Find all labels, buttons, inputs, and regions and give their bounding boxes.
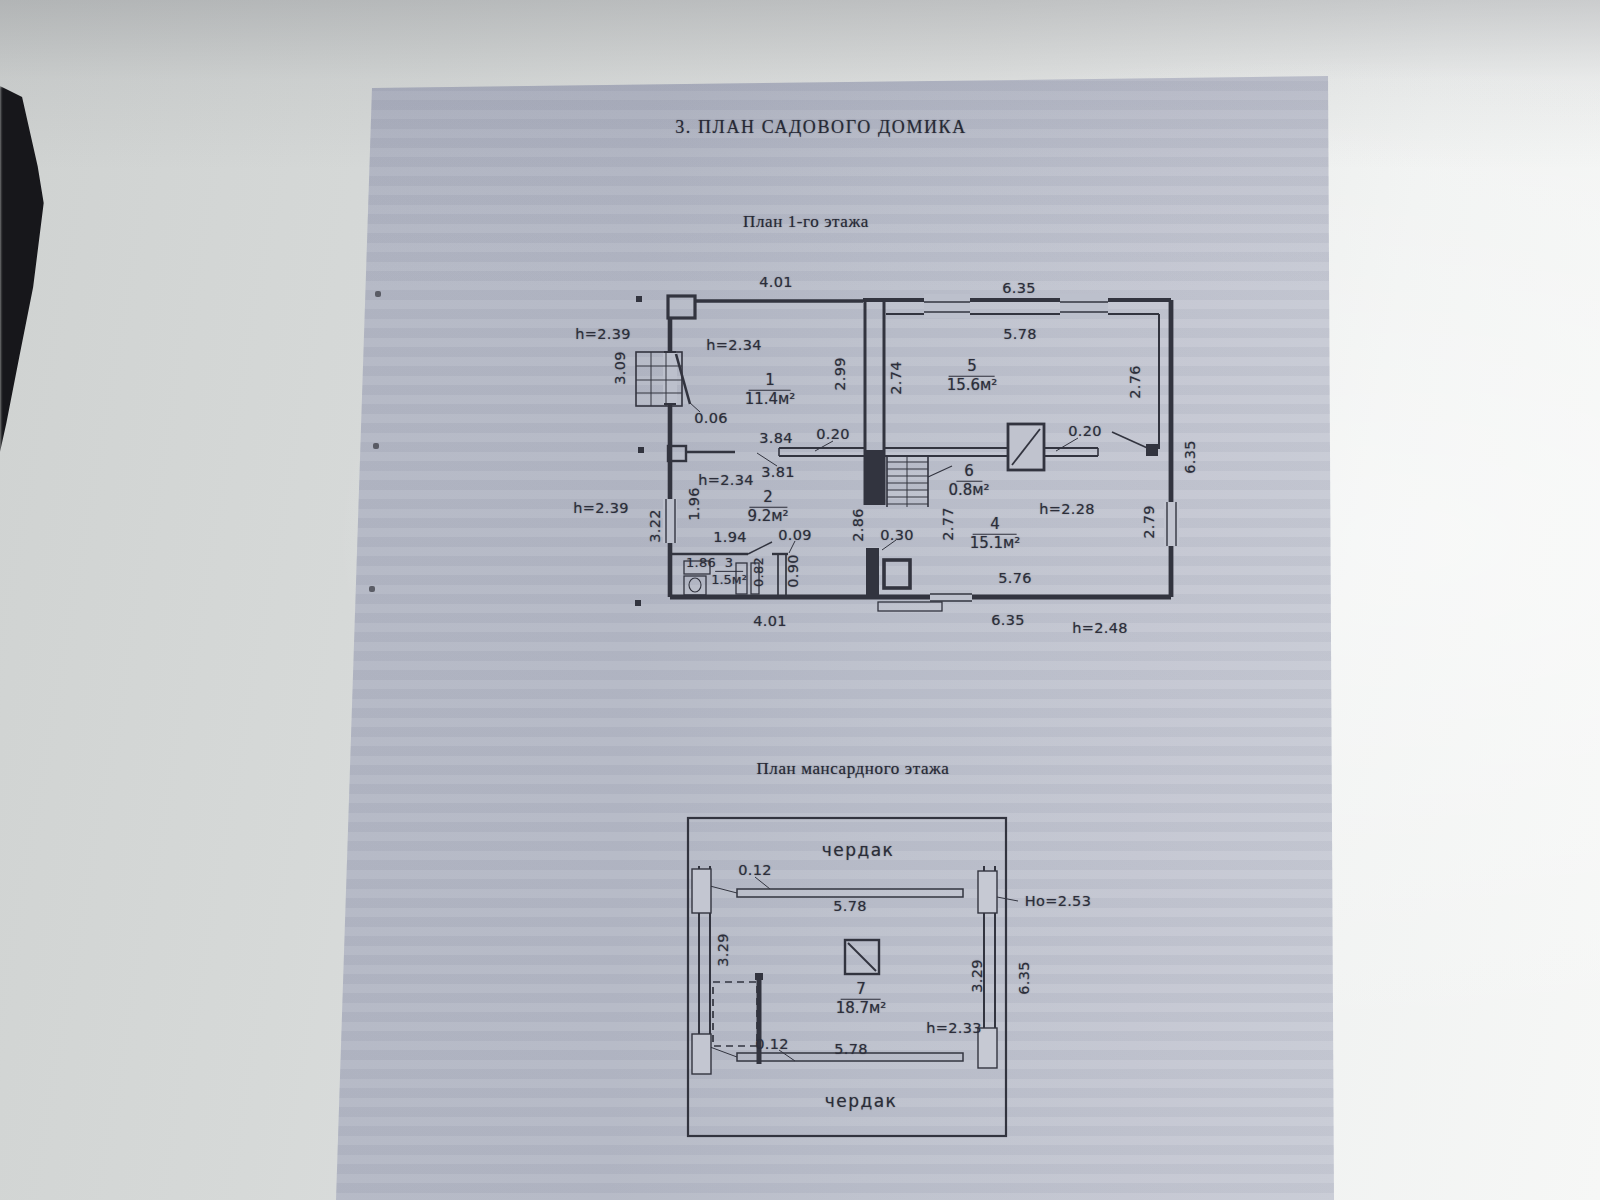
dim-635-top: 6.35 [1002, 281, 1036, 296]
dim-578-mansard-bottom: 5.78 [834, 1042, 868, 1057]
room4-number: 4 [990, 517, 1000, 533]
dim-020-right: 0.20 [1068, 424, 1102, 439]
room7-label: 7 18.7м² [836, 982, 887, 1017]
survey-marker-dots [635, 296, 644, 606]
dim-277: 2.77 [941, 507, 956, 541]
mansard-chimney [845, 940, 879, 974]
dim-h233: h=2.33 [926, 1021, 981, 1036]
dim-012-bottom: 0.12 [755, 1037, 789, 1052]
stairs-ladder-room6 [887, 455, 952, 507]
room6-area: 0.8м² [948, 483, 989, 499]
dim-279: 2.79 [1142, 505, 1157, 539]
dim-030: 0.30 [880, 528, 914, 543]
dim-h239-lower: h=2.39 [573, 501, 628, 516]
dim-299: 2.99 [833, 357, 848, 391]
dim-329-left: 3.29 [716, 933, 731, 967]
dim-006: 0.06 [694, 411, 728, 426]
room1-area: 11.4м² [745, 392, 796, 408]
dim-578-mansard-top: 5.78 [833, 899, 867, 914]
dim-329-right: 3.29 [970, 959, 985, 993]
room6-label: 6 0.8м² [948, 464, 989, 499]
floor1-middle-wall [865, 300, 884, 597]
dim-635-mansard: 6.35 [1017, 961, 1032, 995]
dim-009: 0.09 [778, 528, 812, 543]
dim-196: 1.96 [687, 487, 702, 521]
dim-012-top: 0.12 [738, 863, 772, 878]
dim-082: 0.82 [752, 557, 765, 587]
dim-384: 3.84 [759, 431, 793, 446]
room2-area: 9.2м² [747, 509, 788, 525]
dim-274: 2.74 [889, 361, 904, 395]
room1-number: 1 [765, 373, 775, 389]
room3-number: 3 [725, 556, 733, 570]
room1-label: 1 11.4м² [745, 373, 796, 408]
entry-door-and-porch-steps [636, 352, 700, 412]
mansard-subtitle: План мансардного этажа [756, 760, 949, 777]
attic-label-bottom: чердак [825, 1093, 898, 1110]
dim-322: 3.22 [648, 509, 663, 543]
dim-h248: h=2.48 [1072, 621, 1127, 636]
room7-area: 18.7м² [836, 1001, 887, 1017]
dim-286: 2.86 [851, 508, 866, 542]
dim-h228: h=2.28 [1039, 502, 1094, 517]
room2-number: 2 [763, 490, 773, 506]
dim-194: 1.94 [713, 530, 747, 545]
dim-401-bottom: 4.01 [753, 614, 787, 629]
room6-number: 6 [964, 464, 974, 480]
room4-label: 4 15.1м² [970, 517, 1021, 552]
dim-309: 3.09 [613, 351, 628, 385]
room5-label: 5 15.6м² [947, 359, 998, 394]
dim-ho253: Но=2.53 [1025, 894, 1091, 909]
photo-of-floor-plan-document: 3. ПЛАН САДОВОГО ДОМИКА План 1-го этажа … [0, 0, 1600, 1200]
dim-635-bottom: 6.35 [991, 613, 1025, 628]
room5-area: 15.6м² [947, 378, 998, 394]
dim-381: 3.81 [761, 465, 795, 480]
dim-578-room5: 5.78 [1003, 327, 1037, 342]
room7-number: 7 [856, 982, 866, 998]
dim-020-left: 0.20 [816, 427, 850, 442]
room3-label: 3 1.5м² [711, 556, 747, 586]
dim-h239-upper: h=2.39 [575, 327, 630, 342]
dim-h234-upper: h=2.34 [706, 338, 761, 353]
room4-area: 15.1м² [970, 536, 1021, 552]
room2-label: 2 9.2м² [747, 490, 788, 525]
dim-276: 2.76 [1128, 365, 1143, 399]
dim-635-right: 6.35 [1183, 440, 1198, 474]
attic-label-top: чердак [822, 842, 895, 859]
dim-576: 5.76 [998, 571, 1032, 586]
stove-room4 [884, 560, 910, 588]
partition-room5-room4 [884, 424, 1158, 470]
dim-090: 0.90 [786, 554, 801, 588]
room5-number: 5 [967, 359, 977, 375]
plan-linework [0, 0, 1600, 1200]
page-title: 3. ПЛАН САДОВОГО ДОМИКА [675, 118, 967, 136]
attic-outline [688, 818, 1006, 1136]
dim-h234-lower: h=2.34 [698, 473, 753, 488]
room3-area: 1.5м² [711, 573, 747, 587]
dim-401-top: 4.01 [759, 275, 793, 290]
floor1-subtitle: План 1-го этажа [743, 213, 869, 230]
